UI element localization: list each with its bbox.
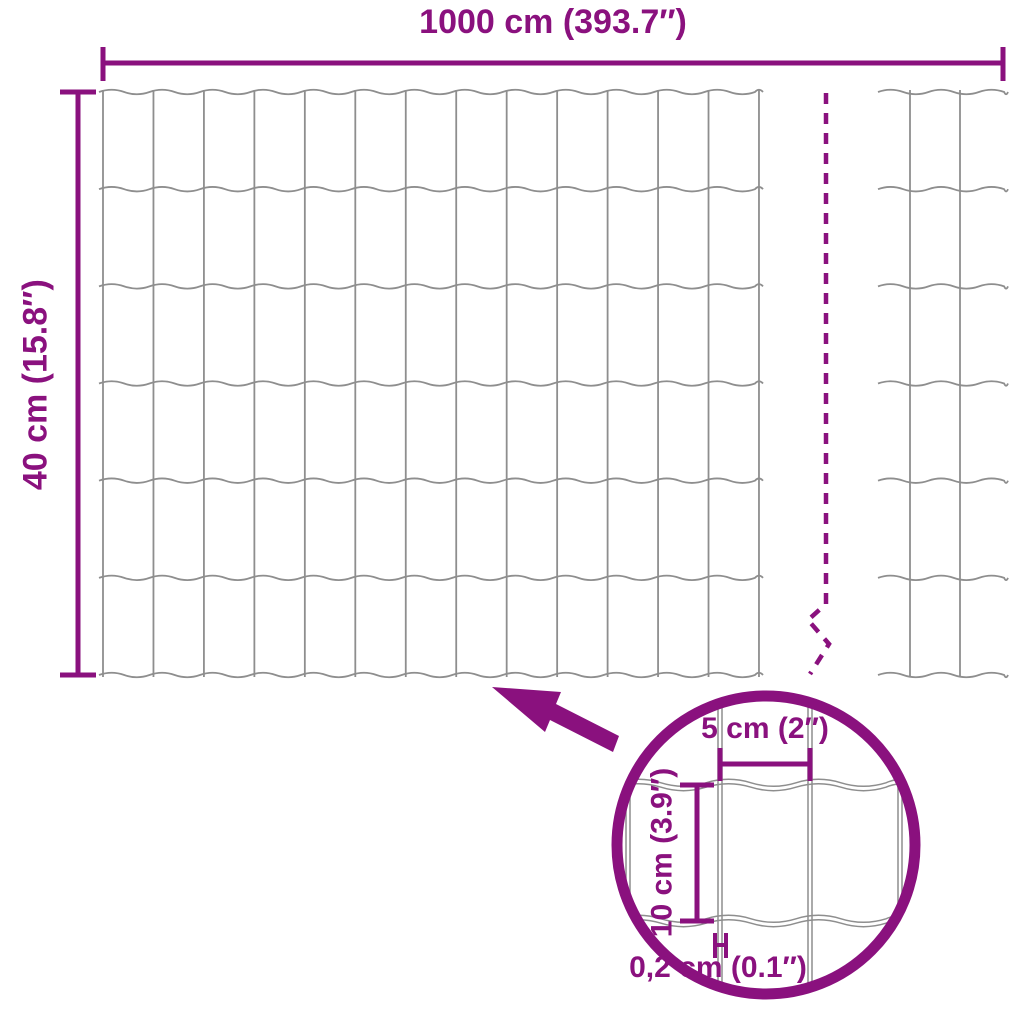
width-dimension-line (103, 47, 1003, 81)
wire-thickness-label: 0,2 cm (0.1″) (588, 951, 848, 984)
fence-mesh-main (99, 90, 763, 678)
zoom-arrow-icon (492, 687, 619, 752)
fence-dimension-diagram: 1000 cm (393.7″) 40 cm (15.8″) 5 cm (2″)… (0, 0, 1024, 1024)
mesh-width-label: 5 cm (2″) (665, 712, 865, 745)
total-height-label: 40 cm (15.8″) (17, 235, 54, 535)
mesh-height-label: 10 cm (3.9″) (646, 731, 679, 975)
detail-mesh-width-dimension (720, 748, 810, 781)
fence-mesh-continuation (878, 90, 1008, 678)
break-line-icon (808, 93, 829, 674)
total-width-label: 1000 cm (393.7″) (253, 4, 853, 41)
diagram-canvas (0, 0, 1024, 1024)
height-dimension-line (60, 92, 96, 675)
detail-mesh-height-dimension (680, 785, 714, 921)
